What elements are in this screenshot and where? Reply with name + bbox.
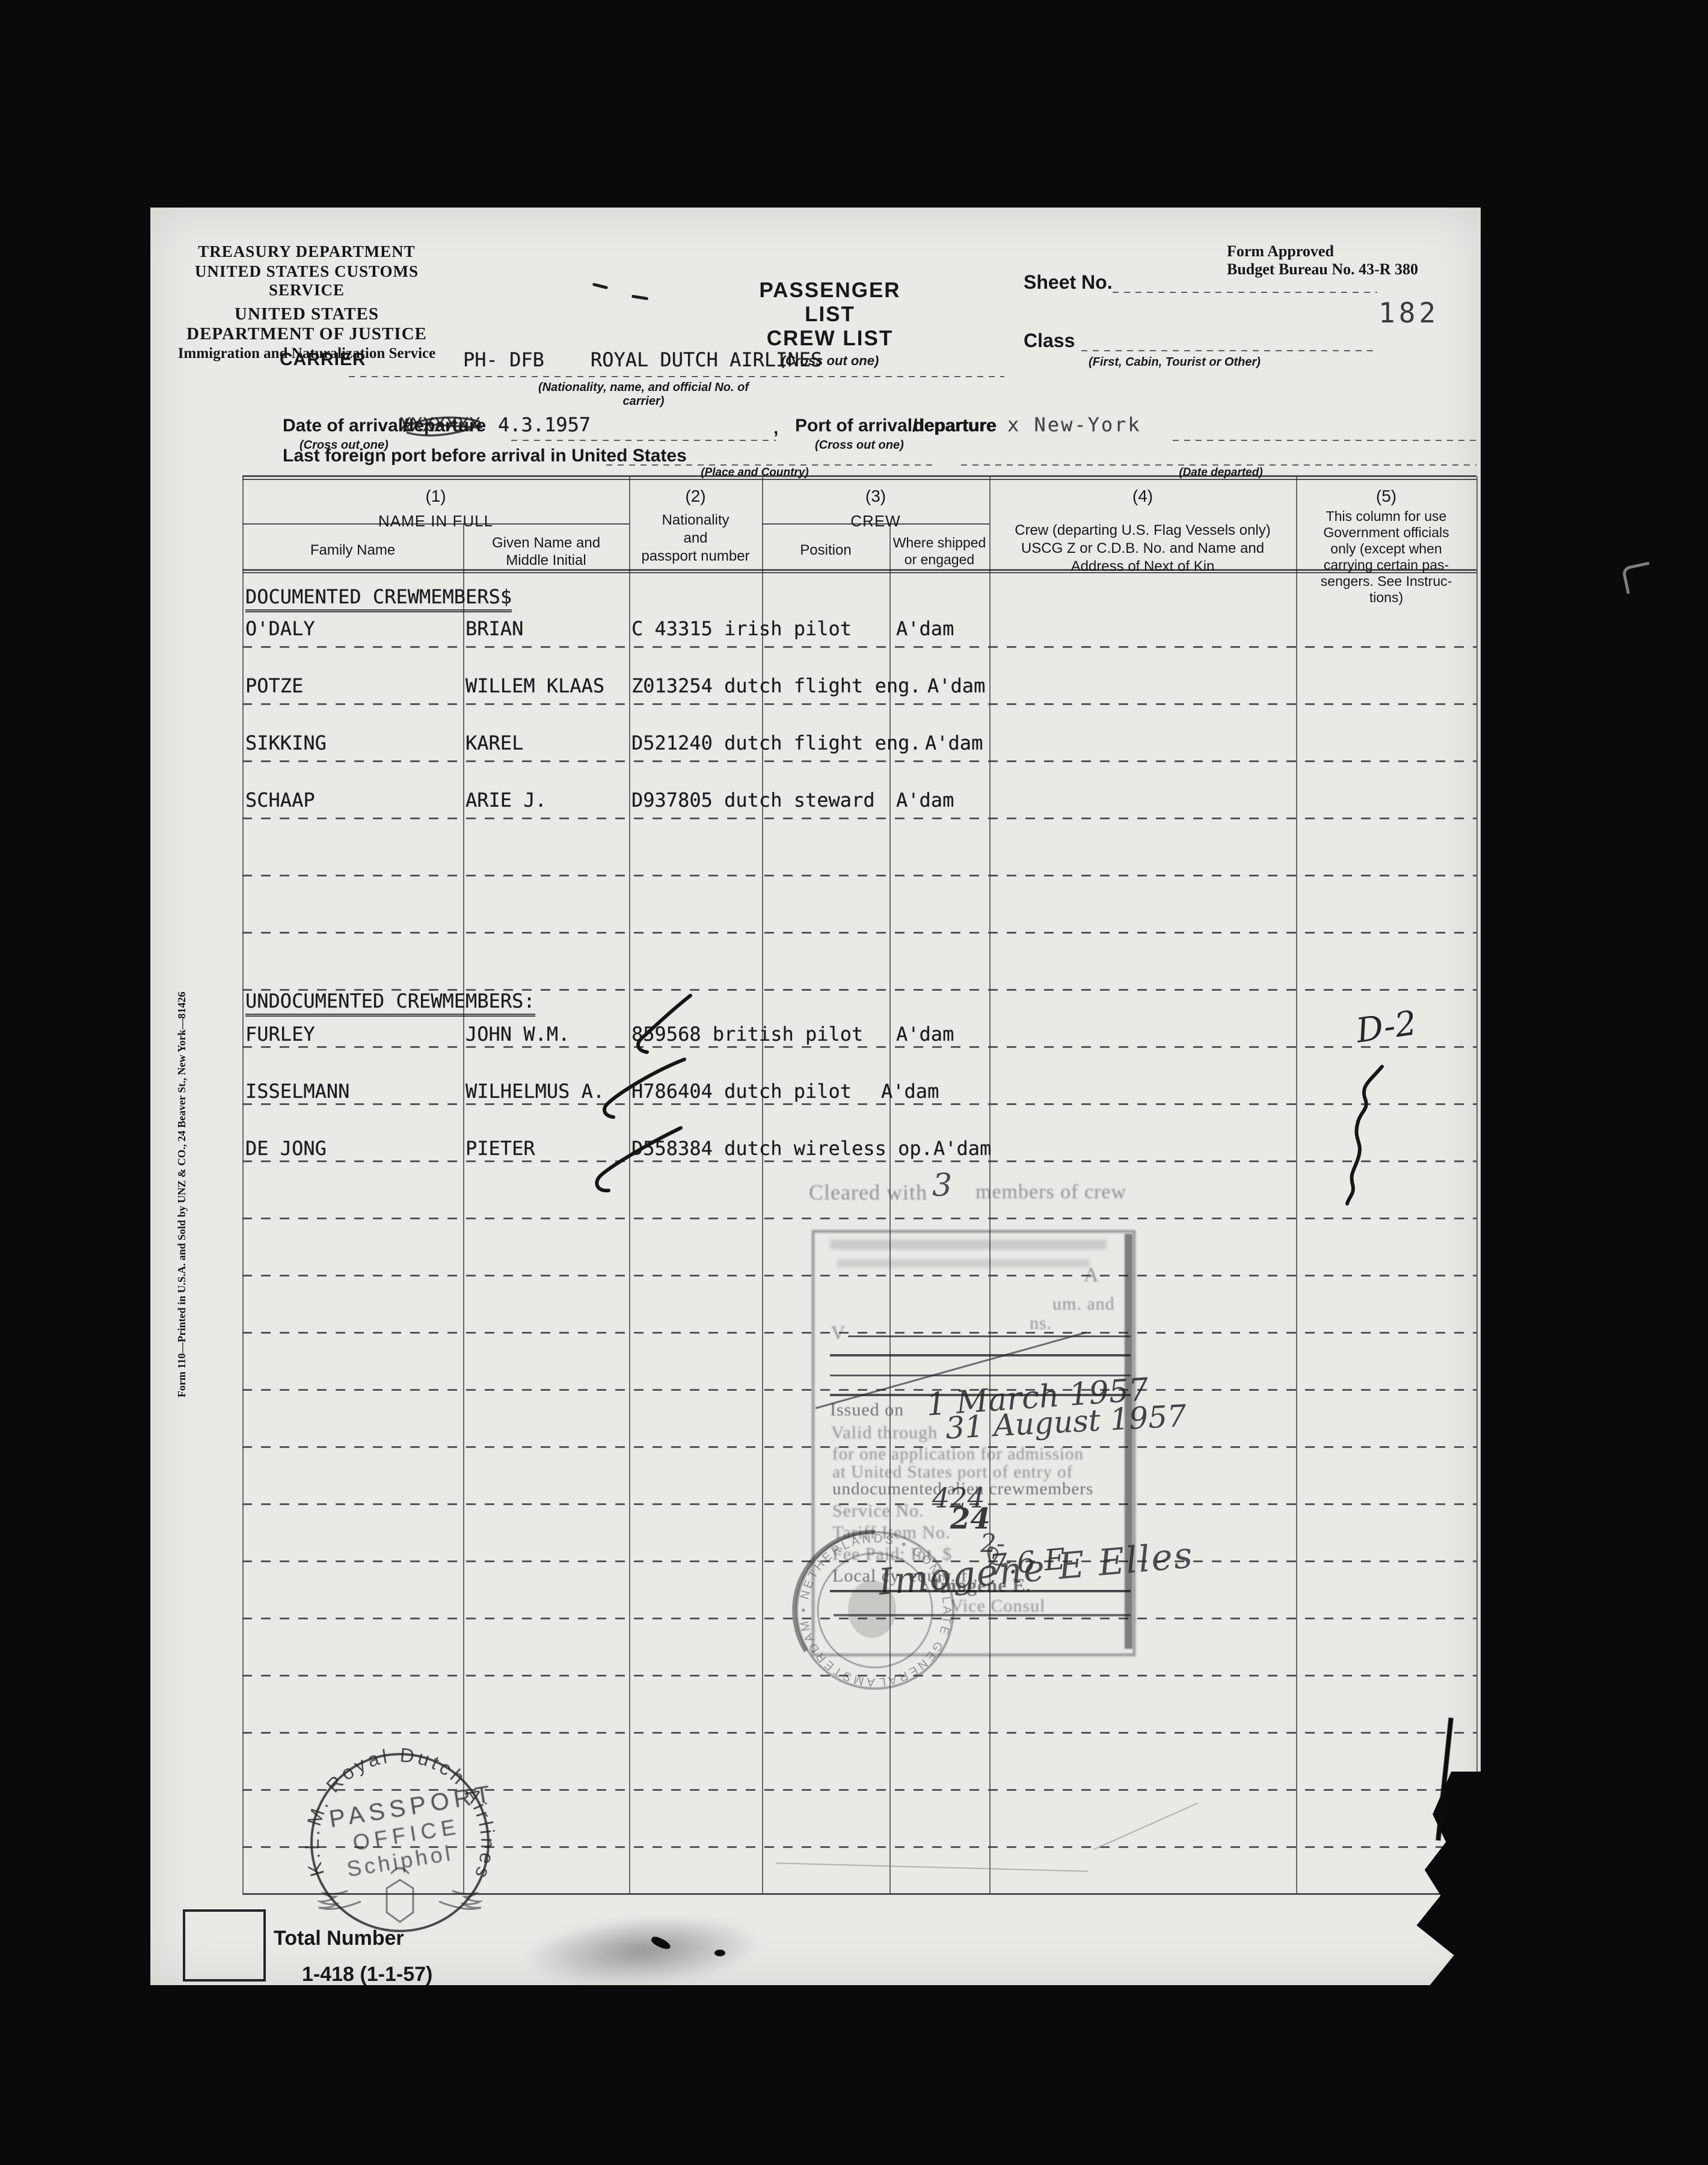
paper-tear-hole — [714, 1950, 725, 1956]
printer-note-vertical: Form 110—Printed in U.S.A. and Sold by U… — [176, 970, 188, 1397]
checkmark-strokes — [597, 996, 690, 1190]
consulate-ring-text: AMSTERDAM • NETHERLANDS • CONSULATE GENE… — [150, 208, 954, 1689]
departure-scribble — [403, 417, 482, 436]
visa-stamp-slash — [816, 1332, 1086, 1408]
scanned-document-page: TREASURY DEPARTMENT UNITED STATES CUSTOM… — [0, 0, 1708, 2165]
total-number-label: Total Number — [274, 1927, 404, 1950]
consulate-seal: AMSTERDAM • NETHERLANDS • CONSULATE GENE… — [150, 208, 954, 1689]
film-scratch-mark — [1621, 562, 1654, 594]
ink-overlay: AMSTERDAM • NETHERLANDS • CONSULATE GENE… — [150, 208, 1481, 1985]
signature-flourish — [986, 1547, 1010, 1568]
paper-sheet: TREASURY DEPARTMENT UNITED STATES CUSTOM… — [150, 208, 1481, 1985]
total-number-box — [183, 1909, 266, 1982]
squiggle-mark — [1347, 1067, 1382, 1204]
form-code: 1-418 (1-1-57) — [302, 1963, 432, 1986]
svg-text:AMSTERDAM • NETHERLANDS • CONS: AMSTERDAM • NETHERLANDS • CONSULATE GENE… — [150, 208, 954, 1689]
